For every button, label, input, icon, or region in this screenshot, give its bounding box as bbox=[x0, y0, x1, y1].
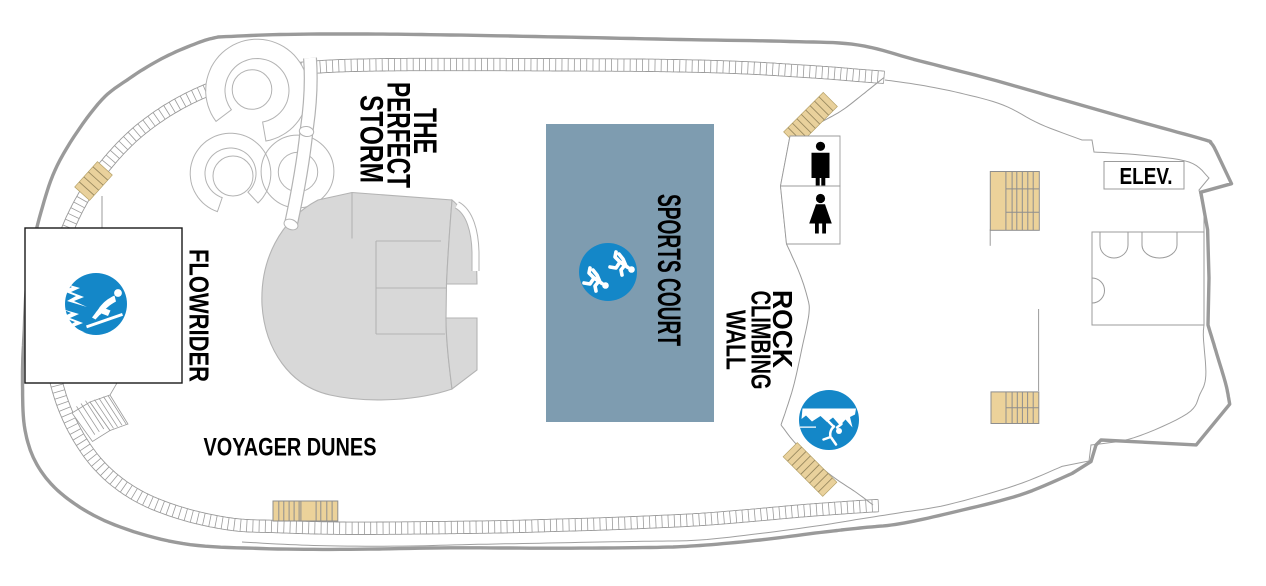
svg-text:WALL: WALL bbox=[720, 310, 751, 370]
svg-text:VOYAGER DUNES: VOYAGER DUNES bbox=[204, 434, 377, 462]
svg-text:ELEV.: ELEV. bbox=[1120, 163, 1173, 189]
svg-text:FLOWRIDER: FLOWRIDER bbox=[183, 249, 214, 382]
svg-text:STORM: STORM bbox=[354, 95, 390, 183]
svg-text:SPORTS COURT: SPORTS COURT bbox=[651, 194, 687, 346]
